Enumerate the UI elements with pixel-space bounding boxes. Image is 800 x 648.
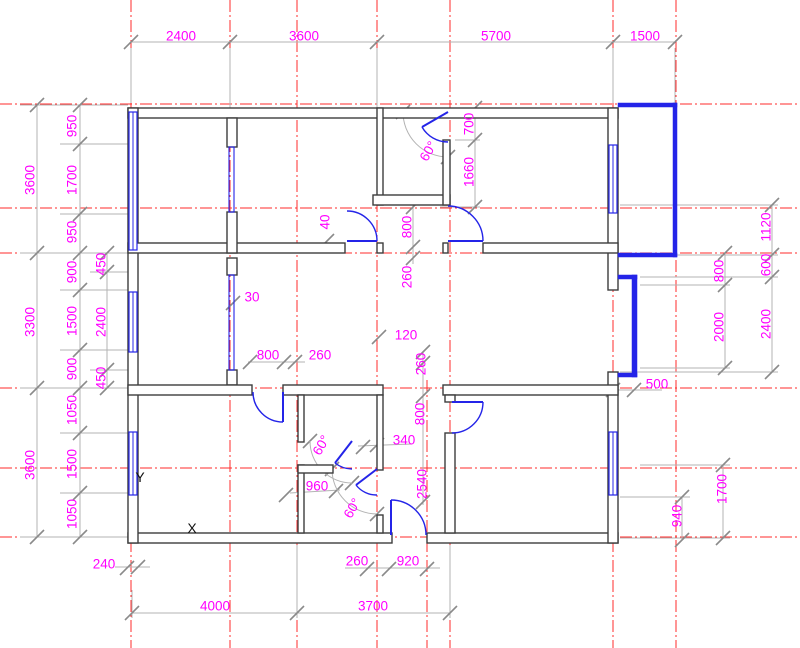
- wall: [298, 395, 304, 442]
- wall: [443, 385, 618, 395]
- wall: [443, 140, 450, 205]
- dimension-label: 450: [94, 253, 109, 276]
- dimension-label: 260: [309, 348, 332, 363]
- dimension-label: 1700: [65, 165, 80, 195]
- door-room2-swing-arc: [347, 211, 377, 241]
- dimension-label: 1120: [759, 212, 774, 241]
- dimension-label: 500: [646, 377, 669, 392]
- dimension-label: 950: [65, 115, 80, 138]
- dimension-label: 5700: [481, 29, 511, 44]
- dimension-label: 1050: [65, 395, 80, 425]
- balcony-edge: [618, 373, 637, 377]
- door-bigroom-swing-arc: [448, 206, 483, 241]
- dimension-label: 30: [244, 290, 259, 305]
- dimension-label: 2000: [712, 312, 727, 342]
- dimension-label: 260: [414, 353, 429, 376]
- dimension-label: 2400: [759, 309, 774, 339]
- dimension-label: 1660: [462, 157, 477, 187]
- dimension-label: 60°: [417, 139, 440, 164]
- wall: [227, 258, 237, 275]
- fixture-layer: [129, 103, 677, 535]
- wall: [227, 212, 237, 253]
- dimension-label: 900: [65, 261, 80, 284]
- dimension-label: 340: [393, 433, 416, 448]
- wall: [483, 243, 618, 253]
- dimension-label: 800: [712, 260, 727, 283]
- balcony-edge: [632, 275, 637, 377]
- cad-drawing-area[interactable]: 2400360057001500360033003600950170095090…: [0, 0, 800, 648]
- dimension-tick: [279, 488, 293, 502]
- dimension-label: 920: [397, 554, 420, 569]
- wall: [445, 433, 455, 533]
- dimension-tick: [226, 296, 240, 310]
- dimension-label: 3600: [289, 29, 319, 44]
- dimension-label: 900: [65, 358, 80, 381]
- grid-layer: [0, 0, 800, 648]
- door-bottomright-swing-arc: [452, 402, 483, 433]
- wall: [227, 370, 237, 385]
- axis-marker-y: Y: [135, 469, 145, 485]
- door-bath-top-leaf: [335, 441, 352, 463]
- wall: [445, 395, 455, 402]
- wall: [427, 533, 618, 543]
- dimension-label: 1500: [65, 449, 80, 479]
- axis-marker-x: X: [187, 520, 197, 536]
- dimension-label: 120: [395, 328, 418, 343]
- dimension-tick: [356, 440, 370, 454]
- wall: [377, 395, 383, 470]
- wall: [298, 465, 304, 533]
- dimension-tick: [382, 562, 396, 576]
- door-midleft-swing-arc: [253, 392, 283, 422]
- dimension-label: 940: [670, 505, 685, 528]
- dimension-tick: [372, 330, 386, 344]
- dimension-label: 60°: [310, 433, 333, 458]
- dimension-label: 800: [413, 403, 428, 426]
- dimension-label: 40: [318, 214, 333, 229]
- wall: [373, 195, 450, 205]
- dimension-label: 3600: [23, 165, 38, 195]
- wall: [298, 465, 333, 473]
- dimension-label: 1500: [630, 29, 660, 44]
- dimension-label: 240: [93, 557, 116, 572]
- dimension-label: 260: [400, 266, 415, 289]
- dimension-label: 1500: [65, 306, 80, 336]
- dimension-label: 3700: [358, 599, 388, 614]
- dimension-label: 950: [65, 221, 80, 244]
- dimension-label: 3300: [23, 307, 38, 337]
- door-bath-bottom-leaf: [356, 469, 377, 485]
- wall: [443, 243, 448, 253]
- dimension-label: 2400: [166, 29, 196, 44]
- dimension-label: 700: [462, 113, 477, 136]
- balcony-edge: [618, 253, 677, 257]
- floor-plan-canvas[interactable]: 2400360057001500360033003600950170095090…: [0, 0, 800, 648]
- dimension-label: 800: [400, 216, 415, 239]
- wall: [377, 243, 383, 253]
- dimension-label: 2400: [94, 307, 109, 337]
- wall: [283, 385, 383, 395]
- wall: [128, 533, 392, 543]
- balcony-edge: [618, 103, 677, 107]
- wall-layer: [128, 108, 618, 543]
- wall: [377, 108, 383, 205]
- wall: [227, 118, 237, 147]
- dimension-label: 4000: [200, 599, 230, 614]
- door-bath-bottom-swing-arc: [356, 485, 377, 495]
- wall: [128, 385, 252, 395]
- wall: [377, 515, 383, 533]
- dimension-label: 960: [306, 479, 329, 494]
- dimension-label: 1050: [65, 499, 80, 529]
- dimension-label: 450: [94, 367, 109, 390]
- dimension-label: 2540: [415, 469, 430, 499]
- wall: [128, 108, 618, 118]
- dimension-label: 260: [346, 554, 369, 569]
- dimension-label: 1700: [715, 474, 730, 504]
- dimension-label: 800: [257, 348, 280, 363]
- dimension-label: 600: [759, 254, 774, 277]
- balcony-edge: [673, 103, 677, 257]
- dimension-label: 3600: [23, 450, 38, 480]
